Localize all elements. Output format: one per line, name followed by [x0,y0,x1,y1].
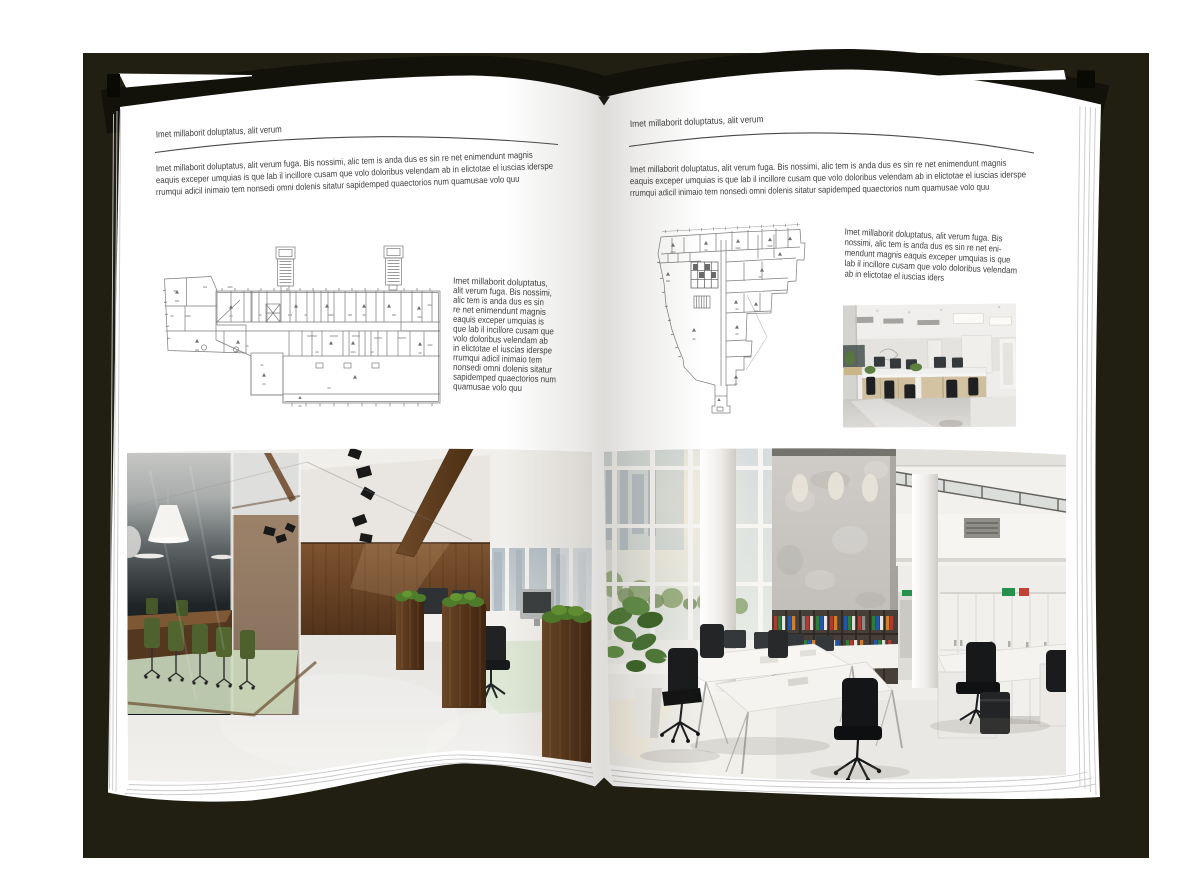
svg-text:quamusae volo quu: quamusae volo quu [453,381,523,394]
